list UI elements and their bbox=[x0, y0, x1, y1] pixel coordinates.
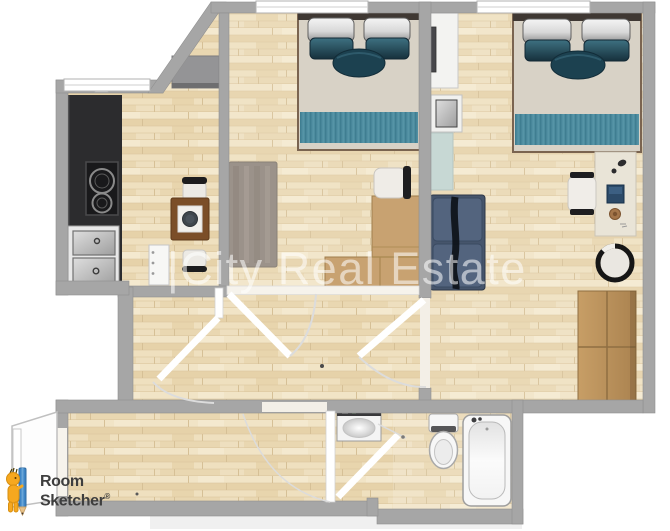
registered-mark: ® bbox=[104, 492, 110, 501]
roomsketcher-mascot-icon bbox=[3, 465, 37, 517]
wall-bath-bottom bbox=[377, 509, 523, 524]
desk-chair-1 bbox=[374, 166, 411, 199]
wall-mid-band bbox=[118, 286, 228, 297]
wall-bath-right bbox=[512, 400, 523, 524]
bedroom1-opening bbox=[227, 286, 419, 295]
bathtub bbox=[463, 415, 511, 506]
loveseat-sofa bbox=[430, 195, 485, 290]
wall-left-upper bbox=[56, 80, 68, 295]
washing-machine bbox=[337, 409, 381, 441]
writing-desk bbox=[595, 152, 636, 236]
double-sink bbox=[68, 226, 119, 289]
wall-right bbox=[643, 2, 655, 413]
bed2-runner bbox=[515, 114, 639, 145]
wall-kitchen-bottom bbox=[56, 281, 129, 295]
bed2-pillow-left bbox=[523, 19, 571, 43]
wall-hall-top bbox=[56, 400, 643, 413]
hall-doorway bbox=[262, 402, 327, 412]
tv-cabinet bbox=[428, 13, 458, 88]
double-bed-2 bbox=[513, 13, 641, 152]
floor-plan bbox=[0, 0, 670, 531]
toilet bbox=[429, 414, 458, 469]
bed2-pillow-right bbox=[582, 19, 630, 43]
area-rug bbox=[229, 162, 277, 267]
wall-junction-stub bbox=[367, 498, 378, 516]
brand-text: Room Sketcher® bbox=[40, 474, 110, 508]
floor-plan-image: |City Real Estate Room Sketcher® bbox=[0, 0, 670, 531]
storage-cabinet bbox=[149, 245, 169, 285]
desk-chair-2 bbox=[568, 172, 596, 215]
bedroom2-doorway bbox=[420, 298, 430, 388]
door-leaf-dining bbox=[215, 288, 223, 318]
cooktop bbox=[86, 162, 118, 215]
roomsketcher-logo: Room Sketcher® bbox=[3, 465, 110, 517]
brand-line1: Room bbox=[40, 473, 84, 490]
wall-left-lower bbox=[118, 287, 133, 405]
brand-line2: Sketcher bbox=[40, 492, 104, 509]
side-table bbox=[431, 95, 462, 132]
dining-chair-bottom bbox=[183, 250, 206, 267]
wall-dining-bedroom1 bbox=[219, 13, 229, 287]
door-leaf-hall bbox=[326, 411, 335, 502]
kitchen bbox=[67, 95, 122, 289]
round-stool bbox=[598, 246, 632, 280]
double-bed-1 bbox=[298, 12, 420, 150]
bed1-runner bbox=[300, 112, 418, 143]
wall-divider-upper bbox=[419, 2, 431, 298]
wardrobe bbox=[578, 291, 636, 403]
